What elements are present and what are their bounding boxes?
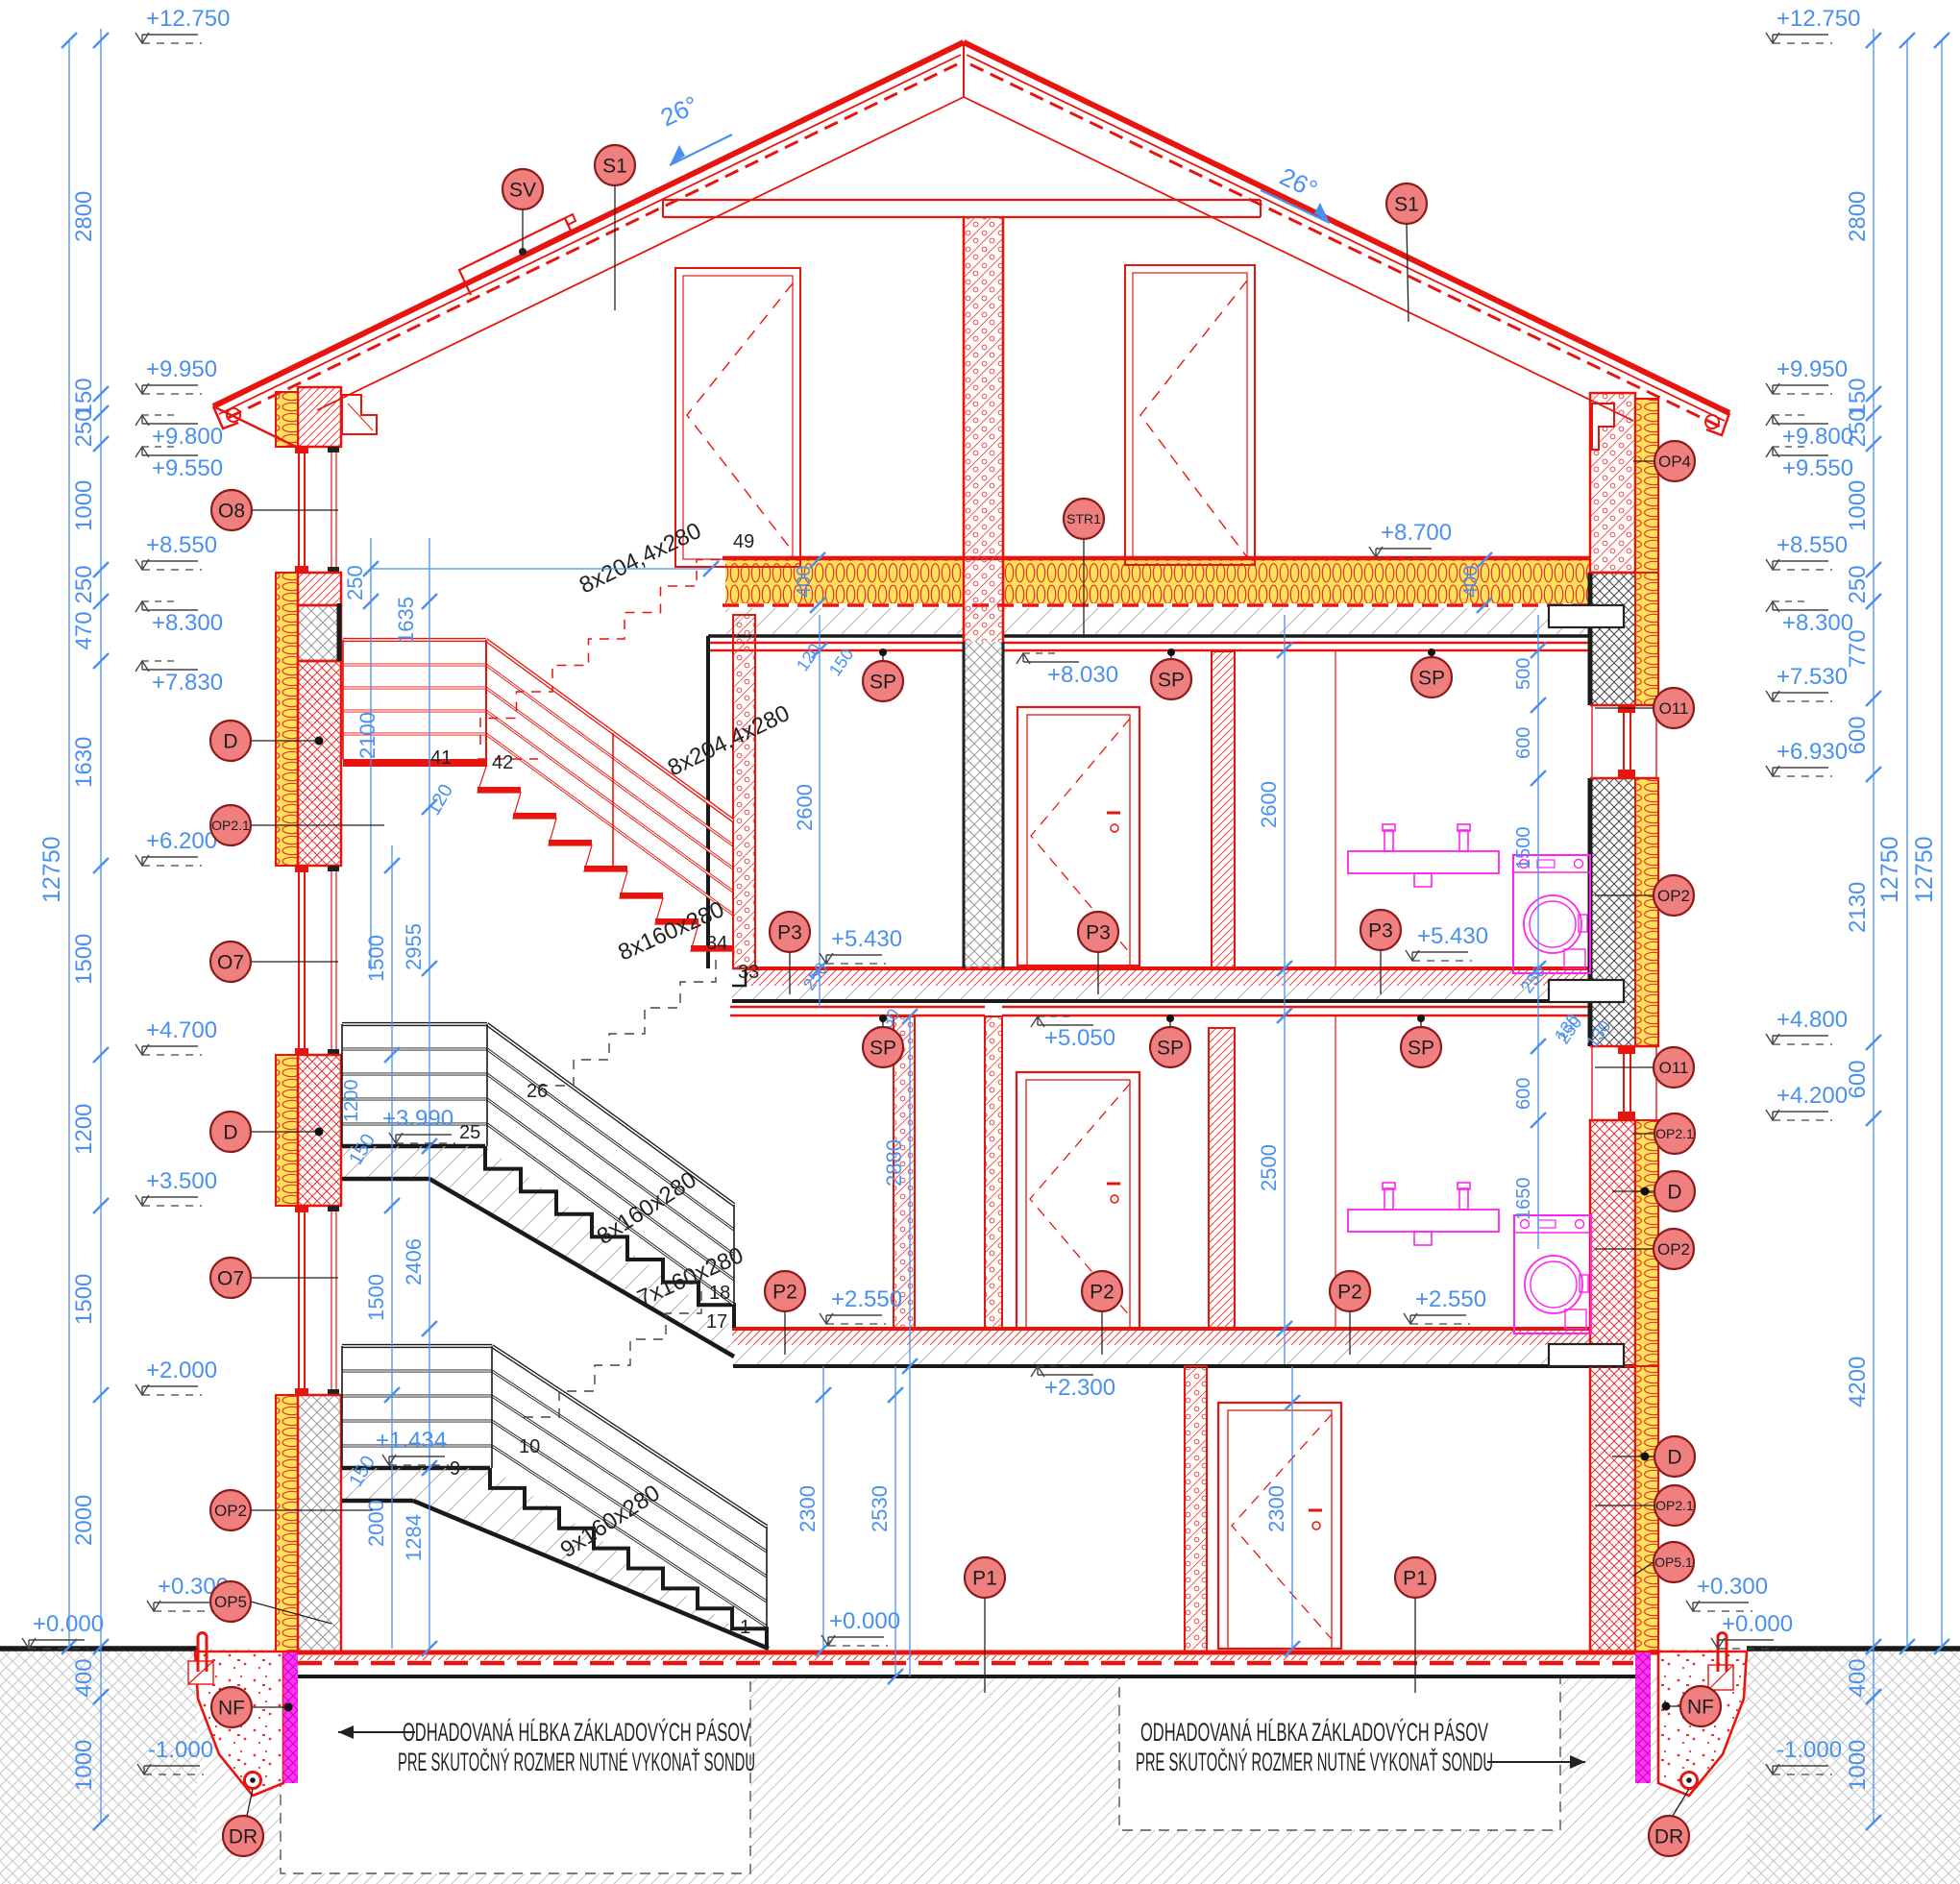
- svg-text:PRE SKUTOČNÝ ROZMER NUTNÉ VYKO: PRE SKUTOČNÝ ROZMER NUTNÉ VYKONAŤ SONDU: [1136, 1747, 1493, 1776]
- svg-text:+8.700: +8.700: [1381, 520, 1452, 546]
- svg-text:250: 250: [71, 408, 97, 447]
- svg-text:+8.300: +8.300: [152, 610, 223, 636]
- svg-text:D: D: [223, 731, 237, 753]
- svg-text:+9.800: +9.800: [152, 424, 223, 450]
- svg-text:+3.500: +3.500: [146, 1168, 217, 1194]
- svg-text:9: 9: [450, 1458, 460, 1480]
- svg-text:18: 18: [709, 1283, 730, 1304]
- svg-text:SP: SP: [870, 1038, 896, 1060]
- svg-text:600: 600: [1845, 1060, 1871, 1098]
- svg-text:500: 500: [1513, 658, 1534, 690]
- svg-text:1200: 1200: [341, 1080, 362, 1123]
- svg-text:OP2.1: OP2.1: [1655, 1498, 1694, 1513]
- svg-text:+4.700: +4.700: [146, 1017, 217, 1043]
- svg-text:+12.750: +12.750: [146, 6, 230, 32]
- svg-text:400: 400: [71, 1658, 97, 1697]
- svg-text:+2.550: +2.550: [1415, 1286, 1486, 1312]
- svg-text:D: D: [1667, 1182, 1681, 1204]
- svg-text:2500: 2500: [1257, 1144, 1281, 1191]
- svg-text:1500: 1500: [364, 1274, 388, 1321]
- svg-text:OP2.1: OP2.1: [211, 818, 250, 833]
- svg-text:25: 25: [459, 1122, 480, 1143]
- svg-text:PRE SKUTOČNÝ ROZMER NUTNÉ VYKO: PRE SKUTOČNÝ ROZMER NUTNÉ VYKONAŤ SONDU: [398, 1747, 755, 1776]
- svg-text:+12.750: +12.750: [1776, 6, 1860, 32]
- svg-text:12750: 12750: [1911, 836, 1938, 903]
- svg-text:600: 600: [1845, 716, 1871, 754]
- svg-text:+0.000: +0.000: [829, 1608, 900, 1634]
- svg-text:ODHADOVANÁ HĹBKA ZÁKLADOVÝCH P: ODHADOVANÁ HĹBKA ZÁKLADOVÝCH PÁSOV: [403, 1718, 750, 1747]
- svg-text:250: 250: [343, 565, 367, 600]
- svg-text:2600: 2600: [793, 784, 817, 831]
- svg-text:+5.050: +5.050: [1044, 1025, 1115, 1051]
- svg-text:1650: 1650: [1513, 1178, 1534, 1221]
- svg-text:+1.434: +1.434: [376, 1428, 447, 1454]
- svg-text:+8.300: +8.300: [1782, 610, 1853, 636]
- svg-text:2300: 2300: [1264, 1485, 1288, 1532]
- svg-text:26: 26: [527, 1081, 548, 1102]
- svg-text:+4.200: +4.200: [1776, 1083, 1848, 1109]
- svg-text:+0.000: +0.000: [1722, 1611, 1793, 1637]
- svg-text:2300: 2300: [796, 1485, 820, 1532]
- svg-text:+9.950: +9.950: [1776, 356, 1848, 382]
- svg-text:P2: P2: [772, 1282, 797, 1304]
- svg-text:+8.550: +8.550: [146, 532, 217, 558]
- svg-text:+9.950: +9.950: [146, 356, 217, 382]
- svg-text:1500: 1500: [364, 935, 388, 982]
- svg-text:P3: P3: [777, 922, 802, 944]
- svg-text:OP2: OP2: [1657, 887, 1690, 905]
- svg-text:1000: 1000: [71, 480, 97, 531]
- svg-text:1000: 1000: [1845, 480, 1871, 531]
- svg-text:2800: 2800: [1845, 191, 1871, 242]
- svg-text:33: 33: [738, 962, 759, 983]
- svg-text:34: 34: [706, 933, 727, 954]
- svg-text:OP5: OP5: [214, 1593, 247, 1611]
- svg-text:17: 17: [706, 1311, 727, 1333]
- svg-text:SP: SP: [1158, 670, 1185, 692]
- svg-text:+0.300: +0.300: [1697, 1574, 1768, 1600]
- svg-text:1500: 1500: [1513, 827, 1534, 870]
- svg-text:P3: P3: [1086, 922, 1111, 944]
- svg-text:P1: P1: [972, 1568, 997, 1590]
- svg-text:SP: SP: [1418, 668, 1445, 690]
- svg-text:+5.430: +5.430: [1417, 923, 1488, 949]
- svg-text:470: 470: [71, 611, 97, 649]
- svg-text:P2: P2: [1337, 1282, 1362, 1304]
- svg-text:P1: P1: [1403, 1568, 1428, 1590]
- svg-text:+3.990: +3.990: [382, 1106, 453, 1132]
- svg-text:1635: 1635: [394, 597, 418, 644]
- svg-text:S1: S1: [1394, 194, 1419, 216]
- svg-text:1500: 1500: [71, 934, 97, 985]
- svg-text:SP: SP: [1408, 1038, 1434, 1060]
- svg-text:-1.000: -1.000: [1776, 1737, 1842, 1763]
- svg-text:+0.000: +0.000: [33, 1611, 104, 1637]
- svg-text:2000: 2000: [71, 1495, 97, 1546]
- svg-text:STR1: STR1: [1066, 511, 1101, 526]
- svg-text:OP5.1: OP5.1: [1654, 1554, 1693, 1570]
- svg-text:OP4: OP4: [1658, 453, 1691, 471]
- svg-text:+9.800: +9.800: [1782, 424, 1853, 450]
- svg-text:OP2: OP2: [214, 1502, 247, 1520]
- svg-text:+9.550: +9.550: [1782, 455, 1853, 481]
- svg-text:+9.550: +9.550: [152, 455, 223, 481]
- svg-text:4200: 4200: [1845, 1357, 1871, 1407]
- svg-text:P2: P2: [1090, 1282, 1115, 1304]
- svg-text:+2.300: +2.300: [1044, 1375, 1115, 1401]
- svg-text:2530: 2530: [868, 1485, 892, 1532]
- svg-text:400: 400: [1460, 566, 1482, 598]
- svg-text:10: 10: [519, 1436, 540, 1457]
- svg-text:600: 600: [1513, 727, 1534, 759]
- svg-text:42: 42: [492, 752, 513, 773]
- svg-text:2000: 2000: [364, 1500, 388, 1547]
- svg-text:O11: O11: [1659, 1059, 1689, 1077]
- svg-text:OP2: OP2: [1657, 1240, 1690, 1259]
- svg-text:DR: DR: [229, 1826, 257, 1848]
- svg-text:+5.430: +5.430: [831, 926, 902, 952]
- svg-text:+8.550: +8.550: [1776, 532, 1848, 558]
- svg-text:DR: DR: [1654, 1826, 1683, 1848]
- svg-text:2600: 2600: [1257, 781, 1281, 828]
- svg-text:2880: 2880: [882, 1139, 906, 1187]
- svg-text:49: 49: [733, 531, 754, 552]
- svg-text:OP2.1: OP2.1: [1655, 1126, 1694, 1141]
- svg-text:2100: 2100: [355, 712, 380, 759]
- svg-text:2800: 2800: [71, 191, 97, 242]
- svg-text:2130: 2130: [1845, 882, 1871, 933]
- svg-text:+4.800: +4.800: [1776, 1007, 1848, 1033]
- svg-text:D: D: [1667, 1447, 1681, 1469]
- svg-text:1500: 1500: [71, 1274, 97, 1325]
- svg-text:+7.830: +7.830: [152, 670, 223, 696]
- svg-text:12750: 12750: [38, 836, 65, 903]
- svg-text:O8: O8: [218, 501, 245, 523]
- svg-text:+6.200: +6.200: [146, 828, 217, 854]
- svg-text:O7: O7: [217, 1268, 244, 1290]
- svg-text:S1: S1: [602, 156, 627, 178]
- svg-text:+2.000: +2.000: [146, 1358, 217, 1383]
- svg-text:1200: 1200: [71, 1104, 97, 1155]
- svg-text:1: 1: [740, 1617, 750, 1638]
- svg-text:2406: 2406: [402, 1238, 426, 1285]
- svg-text:2955: 2955: [402, 923, 426, 970]
- svg-text:ODHADOVANÁ HĹBKA ZÁKLADOVÝCH P: ODHADOVANÁ HĹBKA ZÁKLADOVÝCH PÁSOV: [1140, 1718, 1488, 1747]
- svg-text:41: 41: [430, 747, 452, 769]
- svg-text:P3: P3: [1368, 920, 1393, 942]
- svg-text:1630: 1630: [71, 737, 97, 788]
- svg-text:O11: O11: [1659, 699, 1689, 718]
- svg-text:250: 250: [71, 565, 97, 603]
- svg-text:SP: SP: [870, 672, 896, 694]
- svg-text:+8.030: +8.030: [1047, 662, 1118, 688]
- svg-text:12750: 12750: [1876, 836, 1903, 903]
- svg-text:NF: NF: [218, 1698, 245, 1720]
- svg-text:1000: 1000: [71, 1740, 97, 1791]
- svg-text:D: D: [223, 1122, 237, 1144]
- svg-text:-1.000: -1.000: [148, 1737, 213, 1763]
- svg-text:+7.530: +7.530: [1776, 664, 1848, 690]
- svg-text:SV: SV: [509, 180, 536, 202]
- svg-text:SP: SP: [1157, 1038, 1184, 1060]
- svg-text:1000: 1000: [1845, 1740, 1871, 1791]
- svg-text:250: 250: [1845, 565, 1871, 603]
- svg-text:+6.930: +6.930: [1776, 739, 1848, 765]
- svg-text:O7: O7: [217, 952, 244, 974]
- svg-text:400: 400: [794, 566, 815, 598]
- svg-text:1284: 1284: [402, 1514, 426, 1561]
- svg-text:600: 600: [1513, 1078, 1534, 1110]
- svg-text:NF: NF: [1687, 1697, 1714, 1719]
- svg-text:+2.550: +2.550: [831, 1286, 902, 1312]
- svg-text:400: 400: [1845, 1658, 1871, 1697]
